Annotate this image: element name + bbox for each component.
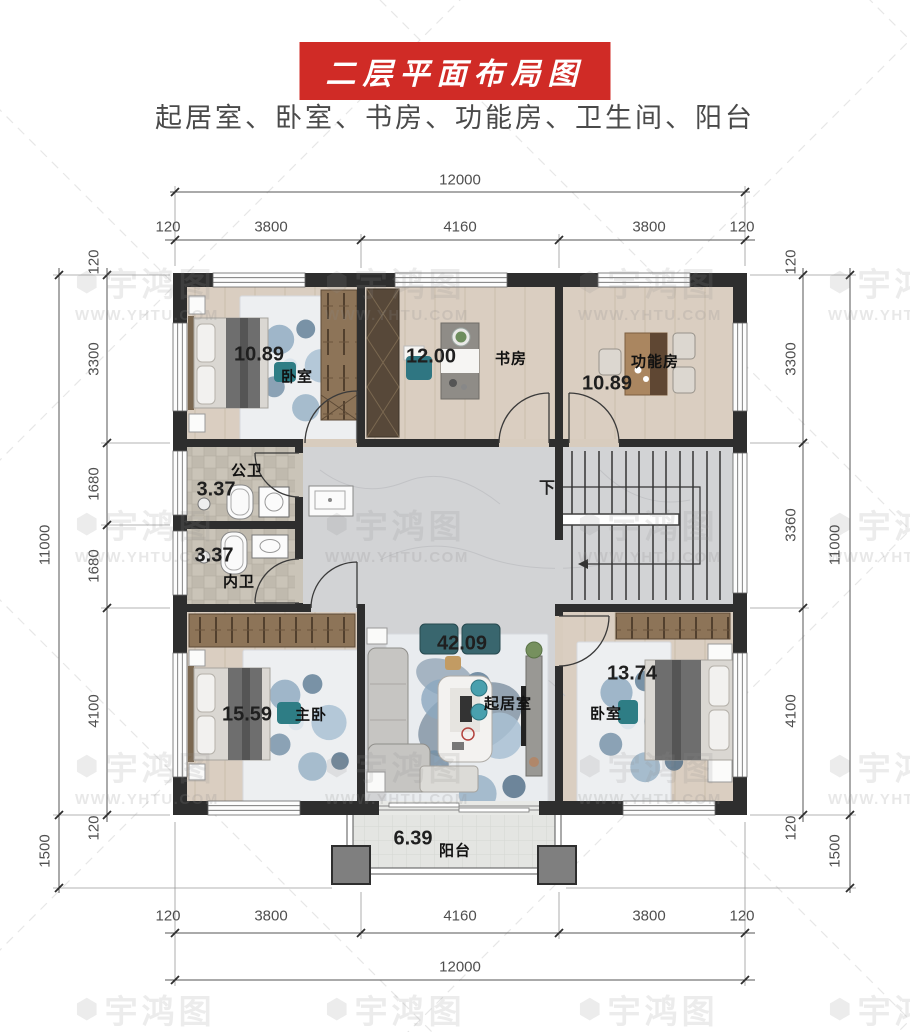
dim-right-seg: 4100 [783, 694, 800, 727]
room-area-study: 12.00 [406, 346, 456, 369]
dim-left-seg: 1680 [86, 549, 103, 582]
dim-left-balcony: 1500 [37, 834, 54, 867]
dim-bottom-overall: 12000 [439, 959, 481, 976]
room-area-bedroom-se: 13.74 [607, 663, 657, 686]
dim-right-balcony: 1500 [827, 834, 844, 867]
balcony-post [538, 846, 576, 884]
room-name-function: 功能房 [631, 351, 679, 372]
dim-left-overall: 11000 [37, 525, 54, 566]
dim-top-seg: 4160 [443, 219, 476, 236]
dim-bottom-seg: 3800 [254, 908, 287, 925]
wardrobe [189, 614, 355, 647]
room-name-bedroom-se: 卧室 [590, 703, 622, 724]
room-name-living: 起居室 [484, 693, 532, 714]
room-name-public-bath: 公卫 [231, 460, 263, 481]
room-name-master: 主卧 [295, 704, 327, 725]
room-area-bedroom-nw: 10.89 [234, 344, 284, 367]
room-area-public-bath: 3.37 [197, 479, 236, 502]
room-area-function: 10.89 [582, 373, 632, 396]
dim-right-overall: 11000 [827, 525, 844, 566]
dim-right-seg: 120 [783, 249, 800, 274]
dim-top-seg: 3800 [254, 219, 287, 236]
room-area-master: 15.59 [222, 704, 272, 727]
dim-left-seg: 120 [86, 815, 103, 840]
dim-top-seg: 120 [155, 219, 180, 236]
floor-plan-page: 二层平面布局图 起居室、卧室、书房、功能房、卫生间、阳台 ⬢宇鸿图WWW.YHT… [0, 0, 910, 1032]
dim-left-seg: 4100 [86, 694, 103, 727]
dim-top-seg: 3800 [632, 219, 665, 236]
plant-icon [526, 642, 542, 658]
floor-plan-svg [0, 0, 910, 1032]
dim-right-seg: 120 [783, 815, 800, 840]
sink-icon [252, 535, 288, 558]
room-name-private-bath: 内卫 [223, 571, 255, 592]
room-name-study: 书房 [495, 348, 527, 369]
room-name-bedroom-nw: 卧室 [281, 366, 313, 387]
dim-top-overall: 12000 [439, 172, 481, 189]
page-title: 二层平面布局图 [300, 42, 611, 100]
dim-bottom-seg: 4160 [443, 908, 476, 925]
dim-bottom-seg: 3800 [632, 908, 665, 925]
dim-bottom-seg: 120 [155, 908, 180, 925]
room-area-private-bath: 3.37 [195, 545, 234, 568]
room-area-balcony: 6.39 [394, 828, 433, 851]
stair-handrail [561, 514, 679, 525]
dim-right-seg: 3300 [783, 342, 800, 375]
dim-left-seg: 120 [86, 249, 103, 274]
dim-left-seg: 1680 [86, 467, 103, 500]
room-area-living: 42.09 [437, 633, 487, 656]
dim-right-seg: 3360 [783, 508, 800, 541]
bed-headboard [188, 316, 194, 410]
bench [420, 766, 478, 792]
dim-left-seg: 3300 [86, 342, 103, 375]
wardrobe [616, 613, 730, 639]
room-name-balcony: 阳台 [439, 840, 471, 861]
stair-down-label: 下 [539, 474, 555, 498]
dim-top-seg: 120 [729, 219, 754, 236]
page-subtitle: 起居室、卧室、书房、功能房、卫生间、阳台 [0, 96, 910, 135]
dim-bottom-seg: 120 [729, 908, 754, 925]
washer-icon [259, 487, 289, 517]
balcony-post [332, 846, 370, 884]
hall-vanity [309, 486, 353, 516]
